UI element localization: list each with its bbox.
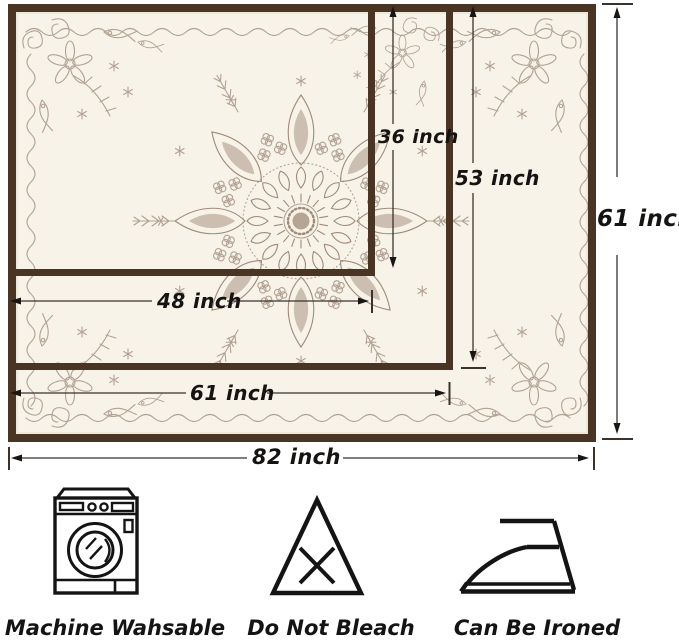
dimension-label-inner-height: 36 inch bbox=[378, 126, 459, 148]
dimension-label-middle-height: 53 inch bbox=[455, 166, 540, 190]
care-label-can-be-ironed: Can Be Ironed bbox=[446, 616, 628, 640]
dimension-label-outer-height: 61 inch bbox=[597, 206, 679, 232]
dimension-label-outer-width: 82 inch bbox=[252, 445, 341, 469]
do-not-bleach-icon bbox=[273, 500, 361, 593]
iron-icon bbox=[461, 521, 575, 592]
product-size-diagram: 36 inch 53 inch 61 inch 48 inch 61 inch … bbox=[0, 0, 679, 642]
tablecloth-size-diagram bbox=[0, 0, 679, 642]
dimension-label-inner-width: 48 inch bbox=[157, 289, 242, 313]
care-label-do-not-bleach: Do Not Bleach bbox=[240, 616, 422, 640]
care-icons bbox=[55, 489, 575, 593]
washing-machine-icon bbox=[55, 489, 137, 593]
dimension-label-middle-width: 61 inch bbox=[190, 381, 275, 405]
care-label-machine-washable: Machine Wahsable bbox=[0, 616, 230, 640]
